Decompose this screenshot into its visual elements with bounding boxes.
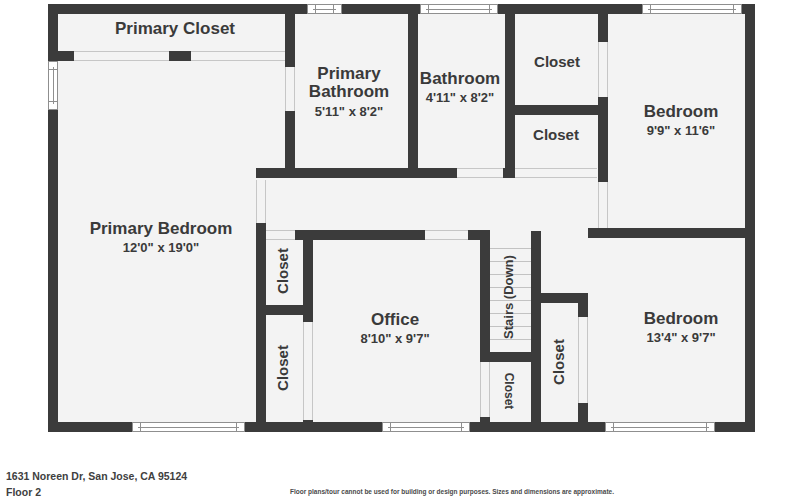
wall-segment bbox=[256, 305, 313, 315]
room-name: Bedroom bbox=[644, 310, 719, 328]
room-dimensions: 4'11" x 8'2" bbox=[420, 91, 500, 106]
room-name: Closet bbox=[533, 127, 579, 143]
floor-plan-interior bbox=[48, 4, 755, 432]
door-opening bbox=[256, 180, 266, 223]
floor-plan: Primary Closet Primary Bathroom 5'11" x … bbox=[0, 0, 800, 501]
window bbox=[382, 422, 470, 432]
wall-segment bbox=[303, 420, 313, 432]
wall-segment bbox=[578, 293, 588, 317]
room-name: Closet bbox=[551, 339, 567, 385]
door-opening bbox=[457, 168, 503, 178]
room-dimensions: 12'0" x 19'0" bbox=[90, 241, 233, 256]
room-label-closet-hall: Closet bbox=[533, 127, 579, 143]
door-opening bbox=[578, 317, 588, 403]
wall-segment bbox=[515, 105, 608, 115]
door-opening bbox=[480, 362, 490, 417]
wall-segment bbox=[256, 168, 457, 178]
door-opening bbox=[303, 322, 313, 420]
room-label-bathroom: Bathroom 4'11" x 8'2" bbox=[420, 70, 500, 105]
room-name: Closet bbox=[275, 248, 291, 294]
room-name: Primary Bedroom bbox=[90, 220, 233, 238]
room-label-closet-under-stairs: Closet bbox=[503, 373, 516, 410]
door-opening bbox=[425, 230, 468, 240]
room-name: Closet bbox=[534, 54, 580, 70]
window bbox=[132, 422, 245, 432]
disclaimer-text: Floor plans/tour cannot be used for buil… bbox=[290, 488, 614, 495]
window bbox=[642, 4, 742, 14]
stair-step-line bbox=[490, 339, 531, 340]
room-dimensions: 5'11" x 8'2" bbox=[301, 104, 397, 119]
room-dimensions: 13'4" x 9'7" bbox=[644, 331, 719, 346]
door-opening bbox=[598, 182, 608, 228]
room-name: Bathroom bbox=[420, 70, 500, 88]
stair-step-line bbox=[490, 248, 531, 249]
window bbox=[307, 4, 342, 14]
room-label-closet-office: Closet bbox=[275, 345, 291, 391]
room-label-office: Office 8'10" x 9'7" bbox=[360, 311, 429, 346]
window bbox=[420, 4, 498, 14]
wall-segment bbox=[588, 228, 755, 238]
room-label-bedroom-bottom: Bedroom 13'4" x 9'7" bbox=[644, 310, 719, 345]
room-label-closet-bedroom2: Closet bbox=[551, 339, 567, 385]
wall-segment bbox=[58, 51, 74, 61]
outer-wall-right bbox=[745, 4, 755, 432]
door-opening bbox=[191, 51, 285, 61]
room-label-primary-bathroom: Primary Bathroom 5'11" x 8'2" bbox=[301, 65, 397, 119]
wall-segment bbox=[480, 417, 490, 432]
room-name: Stairs (Down) bbox=[502, 255, 516, 339]
room-name: Primary Bathroom bbox=[301, 65, 397, 102]
wall-segment bbox=[503, 168, 515, 178]
wall-segment bbox=[256, 223, 266, 432]
room-dimensions: 8'10" x 9'7" bbox=[360, 332, 429, 347]
room-label-closet-top: Closet bbox=[534, 54, 580, 70]
wall-segment bbox=[295, 230, 425, 240]
room-name: Primary Closet bbox=[115, 20, 235, 38]
door-opening bbox=[266, 230, 295, 240]
wall-segment bbox=[480, 230, 490, 362]
room-name: Office bbox=[360, 311, 429, 329]
wall-segment bbox=[169, 51, 191, 61]
wall-segment bbox=[285, 4, 295, 67]
door-opening bbox=[285, 67, 295, 111]
wall-segment bbox=[598, 4, 608, 42]
floor-label: Floor 2 bbox=[6, 486, 41, 498]
wall-segment bbox=[505, 4, 515, 178]
room-label-primary-bedroom: Primary Bedroom 12'0" x 19'0" bbox=[90, 220, 233, 255]
room-name: Closet bbox=[275, 345, 291, 391]
wall-segment bbox=[578, 403, 588, 432]
property-address: 1631 Noreen Dr, San Jose, CA 95124 bbox=[6, 470, 187, 482]
door-opening bbox=[598, 42, 608, 97]
room-label-bedroom-top: Bedroom 9'9" x 11'6" bbox=[644, 103, 719, 138]
room-label-stairs: Stairs (Down) bbox=[502, 255, 516, 339]
window bbox=[605, 422, 715, 432]
room-label-primary-closet: Primary Closet bbox=[115, 20, 235, 38]
door-opening bbox=[74, 51, 169, 61]
window bbox=[48, 61, 58, 110]
door-opening bbox=[515, 168, 597, 178]
wall-segment bbox=[408, 4, 418, 178]
room-name: Closet bbox=[503, 373, 516, 410]
room-dimensions: 9'9" x 11'6" bbox=[644, 124, 719, 139]
wall-segment bbox=[531, 231, 541, 432]
room-name: Bedroom bbox=[644, 103, 719, 121]
room-label-closet-left-top: Closet bbox=[275, 248, 291, 294]
